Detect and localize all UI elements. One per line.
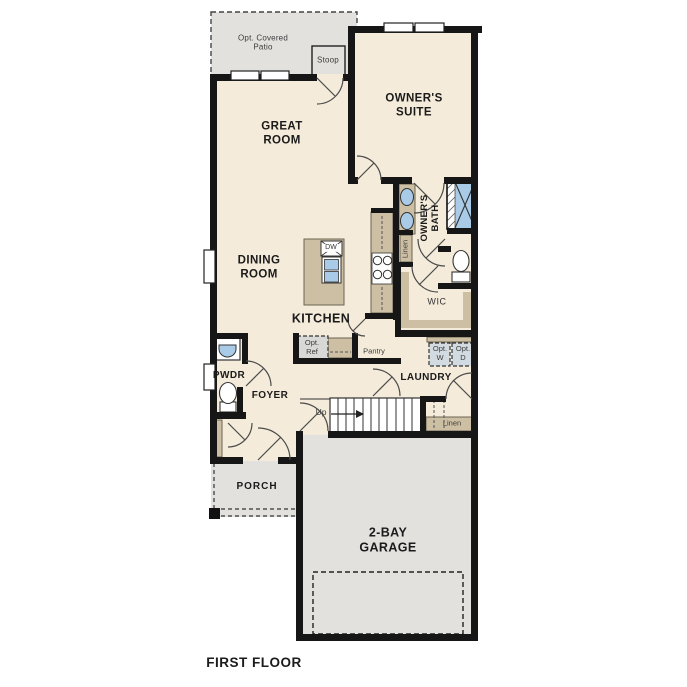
bath-linen-closet (400, 235, 412, 262)
pwdr-toilet-icon (220, 383, 237, 413)
garage-area (300, 435, 474, 637)
opt-washer-box (429, 343, 450, 366)
suite-floor (350, 28, 478, 80)
dishwasher-icon (321, 241, 342, 256)
owners-toilet-icon (452, 251, 470, 283)
floor-plan-drawing (0, 0, 687, 687)
stairs-linen-shelf (426, 417, 472, 431)
window-icon (261, 71, 289, 80)
floor-plan-page: Opt. Covered Patio Stoop OWNER'S SUITE G… (0, 0, 687, 687)
ref-counter (328, 338, 353, 358)
cooktop-icon (372, 253, 392, 284)
island-sink-icon (322, 257, 341, 283)
opt-dryer-box (452, 343, 473, 366)
window-icon (231, 71, 259, 80)
porch-column (209, 508, 220, 519)
window-icon (204, 364, 215, 390)
window-icon (384, 23, 413, 32)
pwdr-sink-icon (214, 338, 240, 360)
window-icon (204, 250, 215, 283)
opt-refrigerator-box (297, 336, 328, 360)
laundry-shelf (427, 337, 472, 342)
stoop-area (312, 46, 345, 76)
window-icon (415, 23, 444, 32)
